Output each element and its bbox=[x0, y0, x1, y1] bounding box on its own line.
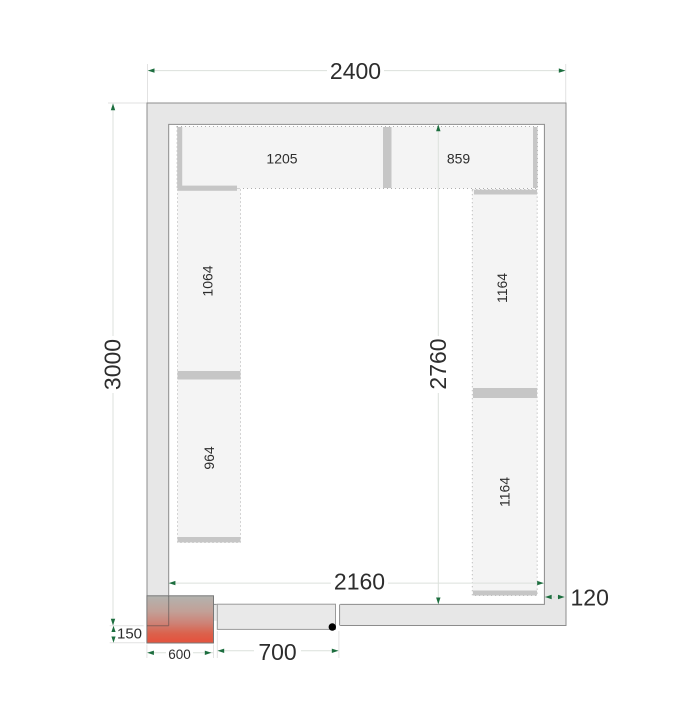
svg-text:1064: 1064 bbox=[200, 265, 216, 296]
svg-text:1164: 1164 bbox=[494, 273, 510, 303]
svg-text:964: 964 bbox=[201, 446, 217, 470]
svg-text:1205: 1205 bbox=[266, 151, 297, 167]
svg-text:2160: 2160 bbox=[334, 569, 385, 595]
svg-text:600: 600 bbox=[168, 647, 191, 662]
svg-text:3000: 3000 bbox=[100, 339, 126, 390]
svg-text:859: 859 bbox=[447, 151, 471, 167]
svg-text:150: 150 bbox=[117, 626, 142, 643]
svg-text:1164: 1164 bbox=[497, 477, 513, 507]
svg-text:2400: 2400 bbox=[330, 58, 381, 84]
svg-text:2760: 2760 bbox=[425, 338, 451, 389]
svg-text:120: 120 bbox=[571, 585, 609, 611]
svg-text:700: 700 bbox=[258, 639, 296, 665]
